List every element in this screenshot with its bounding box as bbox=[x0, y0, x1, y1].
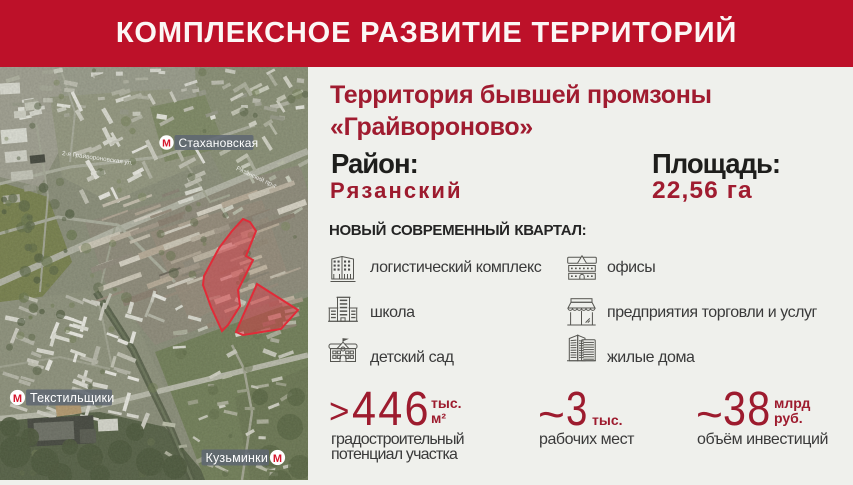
svg-text:М: М bbox=[273, 453, 282, 465]
svg-text:М: М bbox=[13, 393, 22, 405]
svg-text:Текстильщики: Текстильщики bbox=[30, 391, 114, 405]
svg-text:М: М bbox=[162, 138, 171, 150]
svg-text:Кузьминки: Кузьминки bbox=[206, 451, 269, 465]
svg-text:Стахановская: Стахановская bbox=[179, 136, 259, 150]
